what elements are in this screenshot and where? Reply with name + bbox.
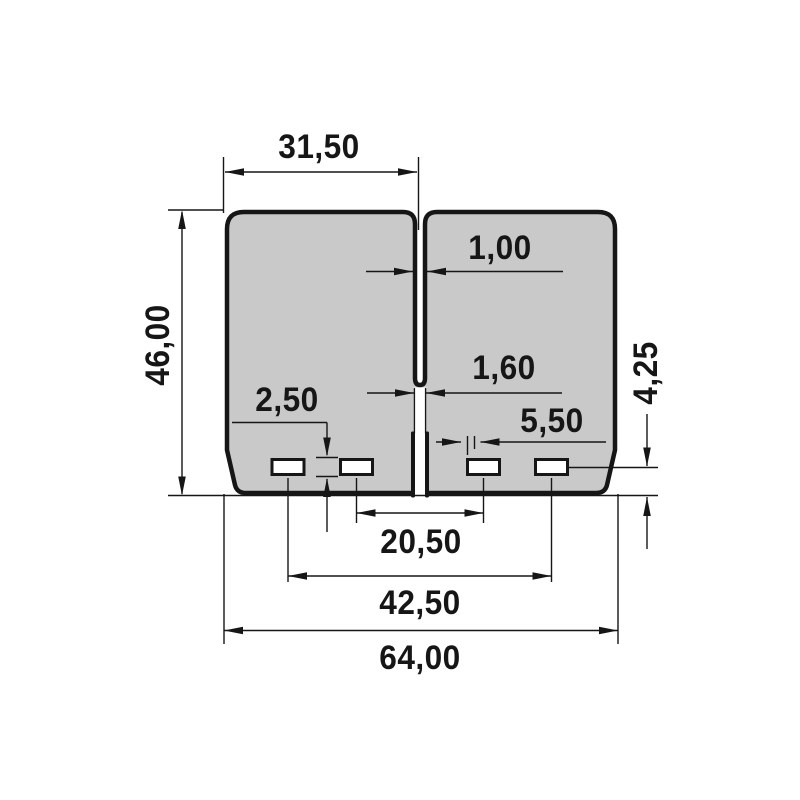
dim-label-slit-width: 1,00 [468, 231, 531, 265]
arrow-left-icon [288, 572, 307, 580]
dim-label-inner-slots-span: 20,50 [380, 525, 461, 559]
arrow-right-icon [465, 509, 484, 517]
arrow-right-icon [398, 168, 417, 176]
dim-label-slot-height: 2,50 [255, 383, 318, 417]
mounting-slot-outer-left [272, 460, 304, 475]
mounting-slot-inner-left [341, 460, 373, 475]
arrow-down-icon [178, 477, 186, 496]
dim-label-overall-width: 64,00 [379, 641, 460, 675]
bottom-notch-left-wall [411, 432, 415, 498]
arrow-right-icon [533, 572, 552, 580]
dim-label-petal-height: 46,00 [141, 304, 175, 385]
drawing-canvas: 31,50 46,00 1,00 1,60 2,50 5,50 4,25 20,… [0, 0, 800, 800]
dim-label-petal-width: 31,50 [278, 130, 359, 164]
mounting-slot-inner-right [468, 460, 500, 475]
arrow-left-icon [224, 627, 243, 635]
arrow-left-icon [357, 509, 376, 517]
bottom-notch-right-wall [425, 432, 429, 498]
drawing-svg [0, 0, 800, 800]
dim-label-bottom-gap: 1,60 [472, 351, 535, 385]
lower-petal-gap [414, 388, 427, 434]
dim-label-slot-width: 5,50 [520, 404, 583, 438]
bottom-notch [411, 432, 429, 498]
arrow-right-icon [599, 627, 618, 635]
lower-gap-cut [414, 388, 427, 434]
mounting-slot-outer-right [536, 460, 568, 475]
arrow-up-icon [643, 497, 651, 516]
bottom-notch-cut [415, 434, 425, 498]
dim-label-slots-to-bottom: 4,25 [629, 341, 663, 404]
arrow-up-icon [178, 210, 186, 229]
arrow-left-icon [225, 168, 244, 176]
dim-label-outer-slots-span: 42,50 [379, 586, 460, 620]
arrow-down-icon [643, 448, 651, 467]
